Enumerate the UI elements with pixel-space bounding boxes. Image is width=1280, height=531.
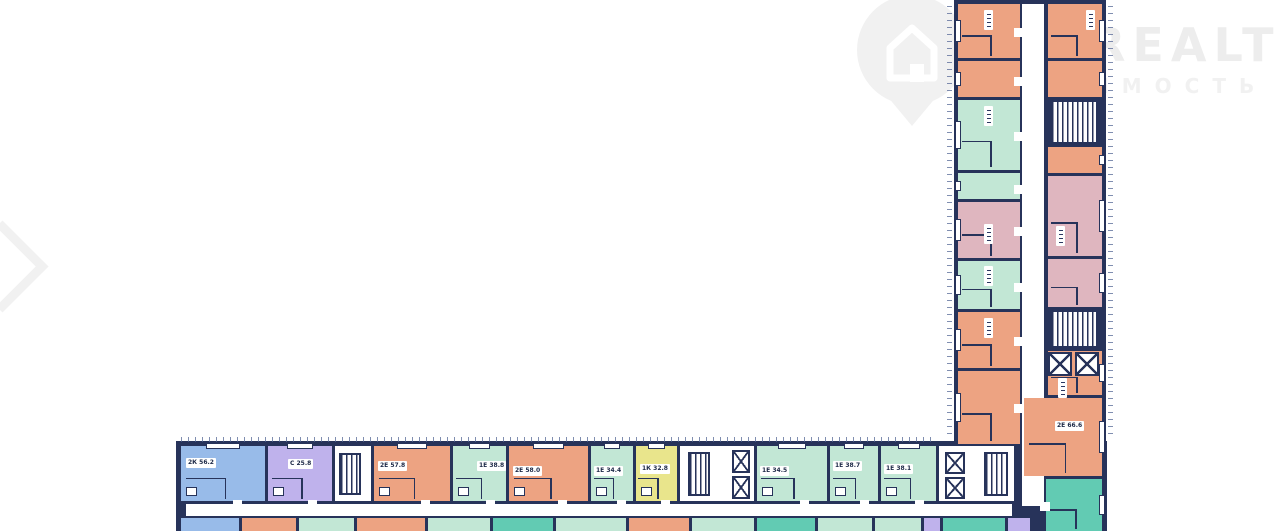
stairs <box>984 452 1008 496</box>
partition-wall <box>990 289 992 307</box>
bathroom <box>273 487 284 496</box>
bottom-row-unit <box>242 518 296 531</box>
window <box>1099 421 1105 452</box>
partition-wall <box>1076 287 1078 305</box>
unit-label: С 25.8 <box>288 459 313 469</box>
window <box>648 443 664 449</box>
elevator <box>1048 352 1072 376</box>
partition-wall <box>1075 509 1077 529</box>
window <box>1099 72 1105 86</box>
door-opening <box>1014 337 1024 346</box>
bottom-row-unit <box>818 518 872 531</box>
window <box>955 181 961 191</box>
door-opening <box>860 500 869 508</box>
partition-wall <box>990 344 992 365</box>
partition-wall <box>962 35 991 37</box>
bottom-row-unit <box>629 518 689 531</box>
door-opening <box>1014 227 1024 236</box>
partition-wall <box>186 478 225 480</box>
illegible-text <box>1089 13 1093 27</box>
apartment-unit <box>1024 398 1102 476</box>
partition-wall <box>962 413 991 415</box>
partition-wall <box>594 478 613 480</box>
unit-label: 1Е 38.1 <box>884 464 913 474</box>
door-opening <box>1014 77 1024 86</box>
door-opening <box>1014 132 1024 141</box>
elevator <box>1075 352 1099 376</box>
window <box>778 443 806 449</box>
unit-label: 1К 32.8 <box>640 464 670 474</box>
illegible-text <box>987 13 991 27</box>
window <box>206 443 240 449</box>
stairs <box>1050 310 1098 348</box>
elevator <box>945 477 965 499</box>
bottom-row-unit <box>943 518 1005 531</box>
bathroom <box>596 487 607 496</box>
bottom-row-unit <box>924 518 940 531</box>
unit-label: 2Е 66.6 <box>1055 421 1084 431</box>
apartment-unit <box>958 61 1020 97</box>
partition-wall <box>990 141 992 168</box>
partition-wall <box>962 289 991 291</box>
unit-label: 1Е 38.7 <box>833 461 862 471</box>
partition-wall <box>225 478 227 499</box>
page: { "watermark": { "brand": "REALT", "subt… <box>0 0 1280 531</box>
illegible-text <box>987 109 991 123</box>
unit-label: 1Е 34.5 <box>760 466 789 476</box>
unit-label: 2К 56.2 <box>186 458 216 468</box>
dimension-ticks <box>1108 6 1113 434</box>
partition-wall <box>550 478 552 499</box>
illegible-text <box>1061 381 1065 395</box>
window <box>898 443 920 449</box>
window <box>1099 200 1105 232</box>
door-opening <box>308 500 317 508</box>
partition-wall <box>793 478 795 499</box>
apartment-unit <box>1048 147 1102 173</box>
bottom-row-unit <box>428 518 490 531</box>
door-opening <box>915 500 924 508</box>
apartment-unit <box>1048 259 1102 307</box>
bathroom <box>514 487 525 496</box>
partition-wall <box>514 478 550 480</box>
window <box>1099 273 1105 292</box>
window <box>1099 155 1105 165</box>
unit-label-chip <box>984 224 993 244</box>
partition-wall <box>1051 222 1076 224</box>
door-opening <box>1014 185 1024 194</box>
bathroom <box>886 487 897 496</box>
partition-wall <box>761 478 793 480</box>
unit-label: 2Е 58.0 <box>513 466 542 476</box>
partition-wall <box>910 478 912 499</box>
window <box>1099 495 1105 516</box>
elevator <box>732 450 750 473</box>
elevator <box>732 476 750 499</box>
unit-label: 1Е 38.8 <box>477 461 506 471</box>
stairs <box>1050 100 1098 144</box>
bottom-row-unit <box>875 518 921 531</box>
partition-wall <box>272 478 301 480</box>
partition-wall <box>638 478 657 480</box>
partition-wall <box>1051 287 1076 289</box>
bottom-row-unit <box>757 518 815 531</box>
partition-wall <box>962 344 991 346</box>
partition-wall <box>1049 509 1075 511</box>
window <box>955 121 961 149</box>
door-opening <box>233 500 242 508</box>
apartment-unit <box>1048 61 1102 97</box>
door-opening <box>421 500 430 508</box>
window <box>844 443 863 449</box>
bottom-row-unit <box>493 518 553 531</box>
partition-wall <box>962 141 991 143</box>
window <box>604 443 621 449</box>
partition-wall <box>1065 443 1067 473</box>
window <box>955 72 961 86</box>
window <box>955 20 961 42</box>
door-opening <box>1014 404 1024 413</box>
illegible-text <box>987 269 991 283</box>
bathroom <box>641 487 652 496</box>
door-opening <box>1040 502 1050 511</box>
bathroom <box>379 487 390 496</box>
door-opening <box>486 500 495 508</box>
door-opening <box>558 500 567 508</box>
partition-wall <box>1051 35 1076 37</box>
window <box>533 443 565 449</box>
window <box>955 329 961 351</box>
partition-wall <box>990 35 992 56</box>
bottom-row-unit <box>692 518 754 531</box>
illegible-text <box>1059 229 1063 243</box>
apartment-unit <box>958 173 1020 199</box>
partition-wall <box>301 478 303 499</box>
unit-label: 1Е 34.4 <box>594 466 623 476</box>
illegible-text <box>987 227 991 241</box>
apartment-unit <box>1046 479 1102 531</box>
unit-label-chip <box>984 10 993 30</box>
unit-label-chip <box>984 266 993 286</box>
window <box>955 393 961 422</box>
bathroom <box>186 487 197 496</box>
door-opening <box>800 500 809 508</box>
window <box>287 443 313 449</box>
door-opening <box>661 500 670 508</box>
apartment-unit <box>958 371 1020 444</box>
dimension-ticks <box>181 437 936 442</box>
bottom-row-unit <box>357 518 425 531</box>
partition-wall <box>414 478 416 499</box>
door-opening <box>1014 283 1024 292</box>
unit-label-chip <box>1056 226 1065 246</box>
window <box>955 219 961 241</box>
window <box>469 443 490 449</box>
bottom-row-unit <box>181 518 239 531</box>
window <box>1099 20 1105 42</box>
stairs <box>688 452 710 496</box>
partition-wall <box>990 413 992 441</box>
bottom-row-unit <box>556 518 626 531</box>
unit-label-chip <box>984 106 993 126</box>
window <box>1099 364 1105 382</box>
unit-label-chip <box>1086 10 1095 30</box>
door-opening <box>617 500 626 508</box>
partition-wall <box>481 478 483 499</box>
illegible-text <box>987 321 991 335</box>
dimension-ticks <box>947 6 952 434</box>
bottom-row-unit <box>1008 518 1030 531</box>
stairs <box>339 453 361 495</box>
bathroom <box>458 487 469 496</box>
door-opening <box>1014 28 1024 37</box>
partition-wall <box>1076 377 1078 394</box>
unit-label-chip <box>1058 378 1067 398</box>
bathroom <box>835 487 846 496</box>
window <box>955 275 961 294</box>
unit-label: 2Е 57.8 <box>378 461 407 471</box>
bottom-row-unit <box>299 518 354 531</box>
partition-wall <box>855 478 857 499</box>
elevator <box>945 452 965 474</box>
partition-wall <box>1076 222 1078 252</box>
unit-label-chip <box>984 318 993 338</box>
partition-wall <box>456 478 480 480</box>
bathroom <box>762 487 773 496</box>
partition-wall <box>833 478 855 480</box>
partition-wall <box>1029 443 1065 445</box>
partition-wall <box>1076 35 1078 56</box>
floor-plan: 2К 56.2С 25.82Е 57.81Е 38.82Е 58.01Е 34.… <box>0 0 1280 531</box>
window <box>397 443 427 449</box>
partition-wall <box>379 478 414 480</box>
partition-wall <box>657 478 659 499</box>
partition-wall <box>613 478 615 499</box>
partition-wall <box>884 478 909 480</box>
